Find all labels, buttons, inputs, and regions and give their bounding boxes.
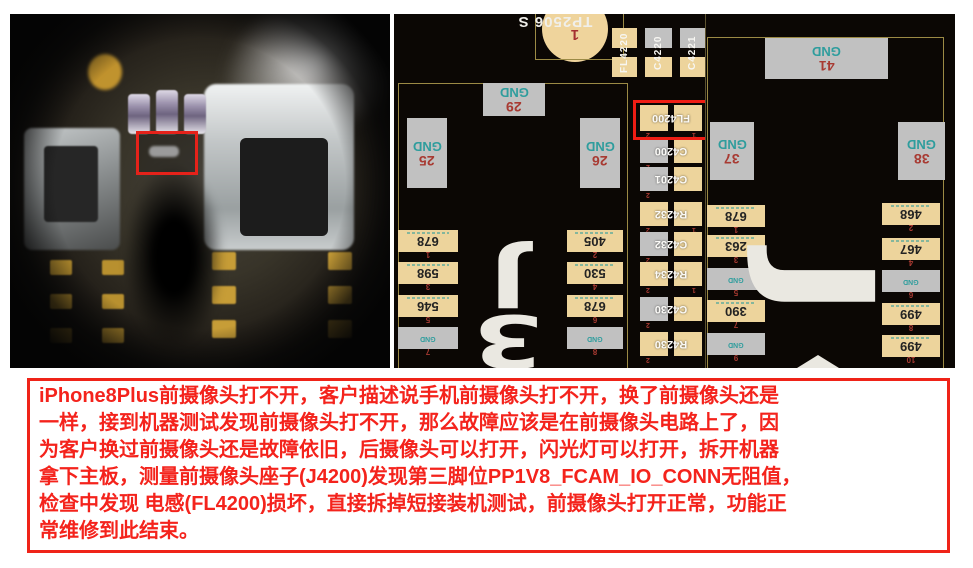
gnd-pad-38: GND 38: [898, 122, 945, 180]
pad-value: 678: [417, 234, 439, 249]
net-label: GND: [413, 139, 442, 153]
pin-number: 5: [426, 315, 430, 324]
net-label: GND: [812, 44, 841, 58]
pin-number: 4: [909, 258, 913, 267]
net-label: GND: [907, 137, 936, 151]
pin-number: 1: [426, 250, 430, 259]
note-line: iPhone8Plus前摄像头打不开，客户描述说手机前摄像头打不开，换了前摄像头…: [39, 383, 947, 410]
pad-value: 405: [584, 234, 606, 249]
pad-value: 678: [584, 299, 606, 314]
net-label: GND: [718, 137, 747, 151]
component-ref: C4230: [640, 297, 702, 321]
component-ref: C4221: [680, 28, 705, 77]
component-C4220: C4220: [645, 28, 672, 77]
gnd-pad-26: GND 26: [580, 118, 620, 188]
pin-number: 2: [646, 191, 650, 198]
component-ref: C4200: [640, 139, 702, 163]
connector-pad: 405 2: [567, 230, 623, 252]
pin-number: 3: [734, 255, 738, 264]
testpoint-label: TP2506 S: [486, 14, 624, 30]
pin-number: 8: [593, 347, 597, 356]
gnd-pad-25: GND 25: [407, 118, 447, 188]
pin-number: 2: [646, 321, 650, 328]
microscope-vignette: [10, 14, 390, 368]
component-C4200: C4200 2: [640, 139, 702, 163]
component-R4230: R4230 2: [640, 332, 702, 356]
pin-number: 2: [646, 286, 650, 293]
pin-number: 5: [734, 288, 738, 297]
pin-number: 26: [592, 153, 608, 168]
pin-number: 38: [914, 151, 930, 166]
pin-number: 10: [907, 355, 916, 364]
component-ref: R4230: [640, 332, 702, 356]
net-label: GND: [500, 85, 529, 99]
repair-note: iPhone8Plus前摄像头打不开，客户描述说手机前摄像头打不开，换了前摄像头…: [27, 378, 950, 553]
boardview-panel-mid: 1 TP2506 S FL4220 C4220 C4221 GND 29 GND…: [394, 14, 705, 368]
pad-value: GND: [587, 335, 603, 342]
pin-number: 2: [646, 356, 650, 363]
repair-case-page: 1 TP2506 S FL4220 C4220 C4221 GND 29 GND…: [0, 0, 973, 568]
component-R4232: R4232 2 1: [640, 202, 702, 226]
connector-designator: J 3: [452, 250, 564, 368]
component-ref: FL4220: [612, 28, 637, 77]
note-line: 为客户换过前摄像头还是故障依旧，后摄像头可以打开，闪光灯可以打开，拆开机器: [39, 437, 947, 464]
pad-value: 499: [900, 339, 922, 354]
net-label: GND: [586, 139, 615, 153]
component-C4221: C4221: [680, 28, 705, 77]
pad-value: 499: [900, 307, 922, 322]
pin-number: 9: [734, 353, 738, 362]
pad-value: 468: [900, 207, 922, 222]
component-FL4220: FL4220: [612, 28, 637, 77]
gnd-pad-29: GND 29: [483, 83, 545, 116]
pin-number: 7: [426, 347, 430, 356]
connector-designator: J: [743, 212, 901, 360]
pad-value: GND: [728, 341, 744, 348]
pad-value: 467: [900, 242, 922, 257]
panel-divider: [705, 14, 706, 368]
component-C4201: C4201 2: [640, 167, 702, 191]
pin-number: 29: [506, 99, 522, 114]
pin-number: 2: [593, 250, 597, 259]
pin-number: 25: [419, 153, 435, 168]
component-R4234: R4234 2 1: [640, 262, 702, 286]
component-ref: R4234: [640, 262, 702, 286]
note-line: 拿下主板，测量前摄像头座子(J4200)发现第三脚位PP1V8_FCAM_IO_…: [39, 464, 947, 491]
pin-number: 8: [909, 323, 913, 332]
boardview-panel-right: GND 41 GND 37 GND 38 678 1 263 3 GND 5 3…: [705, 14, 955, 368]
pin-number: 6: [909, 290, 913, 299]
pin-number: 2: [909, 223, 913, 232]
pin-number: 3: [426, 282, 430, 291]
component-C4232: C4232 2: [640, 232, 702, 256]
note-line: 一样，接到机器测试发现前摄像头打不开，那么故障应该是在前摄像头电路上了，因: [39, 410, 947, 437]
connector-pad: 678 1: [398, 230, 458, 252]
designator-glyph: 3: [432, 312, 583, 369]
component-ref: C4220: [645, 28, 672, 77]
pin-number: 37: [724, 151, 740, 166]
pin-number: 4: [593, 282, 597, 291]
component-ref: R4232: [640, 202, 702, 226]
fl4200-highlight-box: [633, 100, 705, 140]
pin-number: 7: [734, 320, 738, 329]
pin-number: 1: [734, 225, 738, 234]
component-C4230: C4230 2: [640, 297, 702, 321]
component-ref: C4201: [640, 167, 702, 191]
gnd-pad-37: GND 37: [710, 122, 754, 180]
gnd-pad-41: GND 41: [765, 38, 888, 79]
pad-value: 530: [584, 266, 606, 281]
note-line: 检查中发现 电感(FL4200)损坏，直接拆掉短接装机测试，前摄像头打开正常，功…: [39, 491, 947, 518]
pin-number: 41: [819, 58, 835, 73]
pad-value: GND: [903, 278, 919, 285]
designator-glyph: J: [753, 255, 891, 318]
note-line: 常维修到此结束。: [39, 518, 947, 545]
pin-number: 1: [692, 286, 696, 293]
component-ref: C4232: [640, 232, 702, 256]
microscope-photo: [10, 14, 390, 368]
pin-number: 6: [593, 315, 597, 324]
